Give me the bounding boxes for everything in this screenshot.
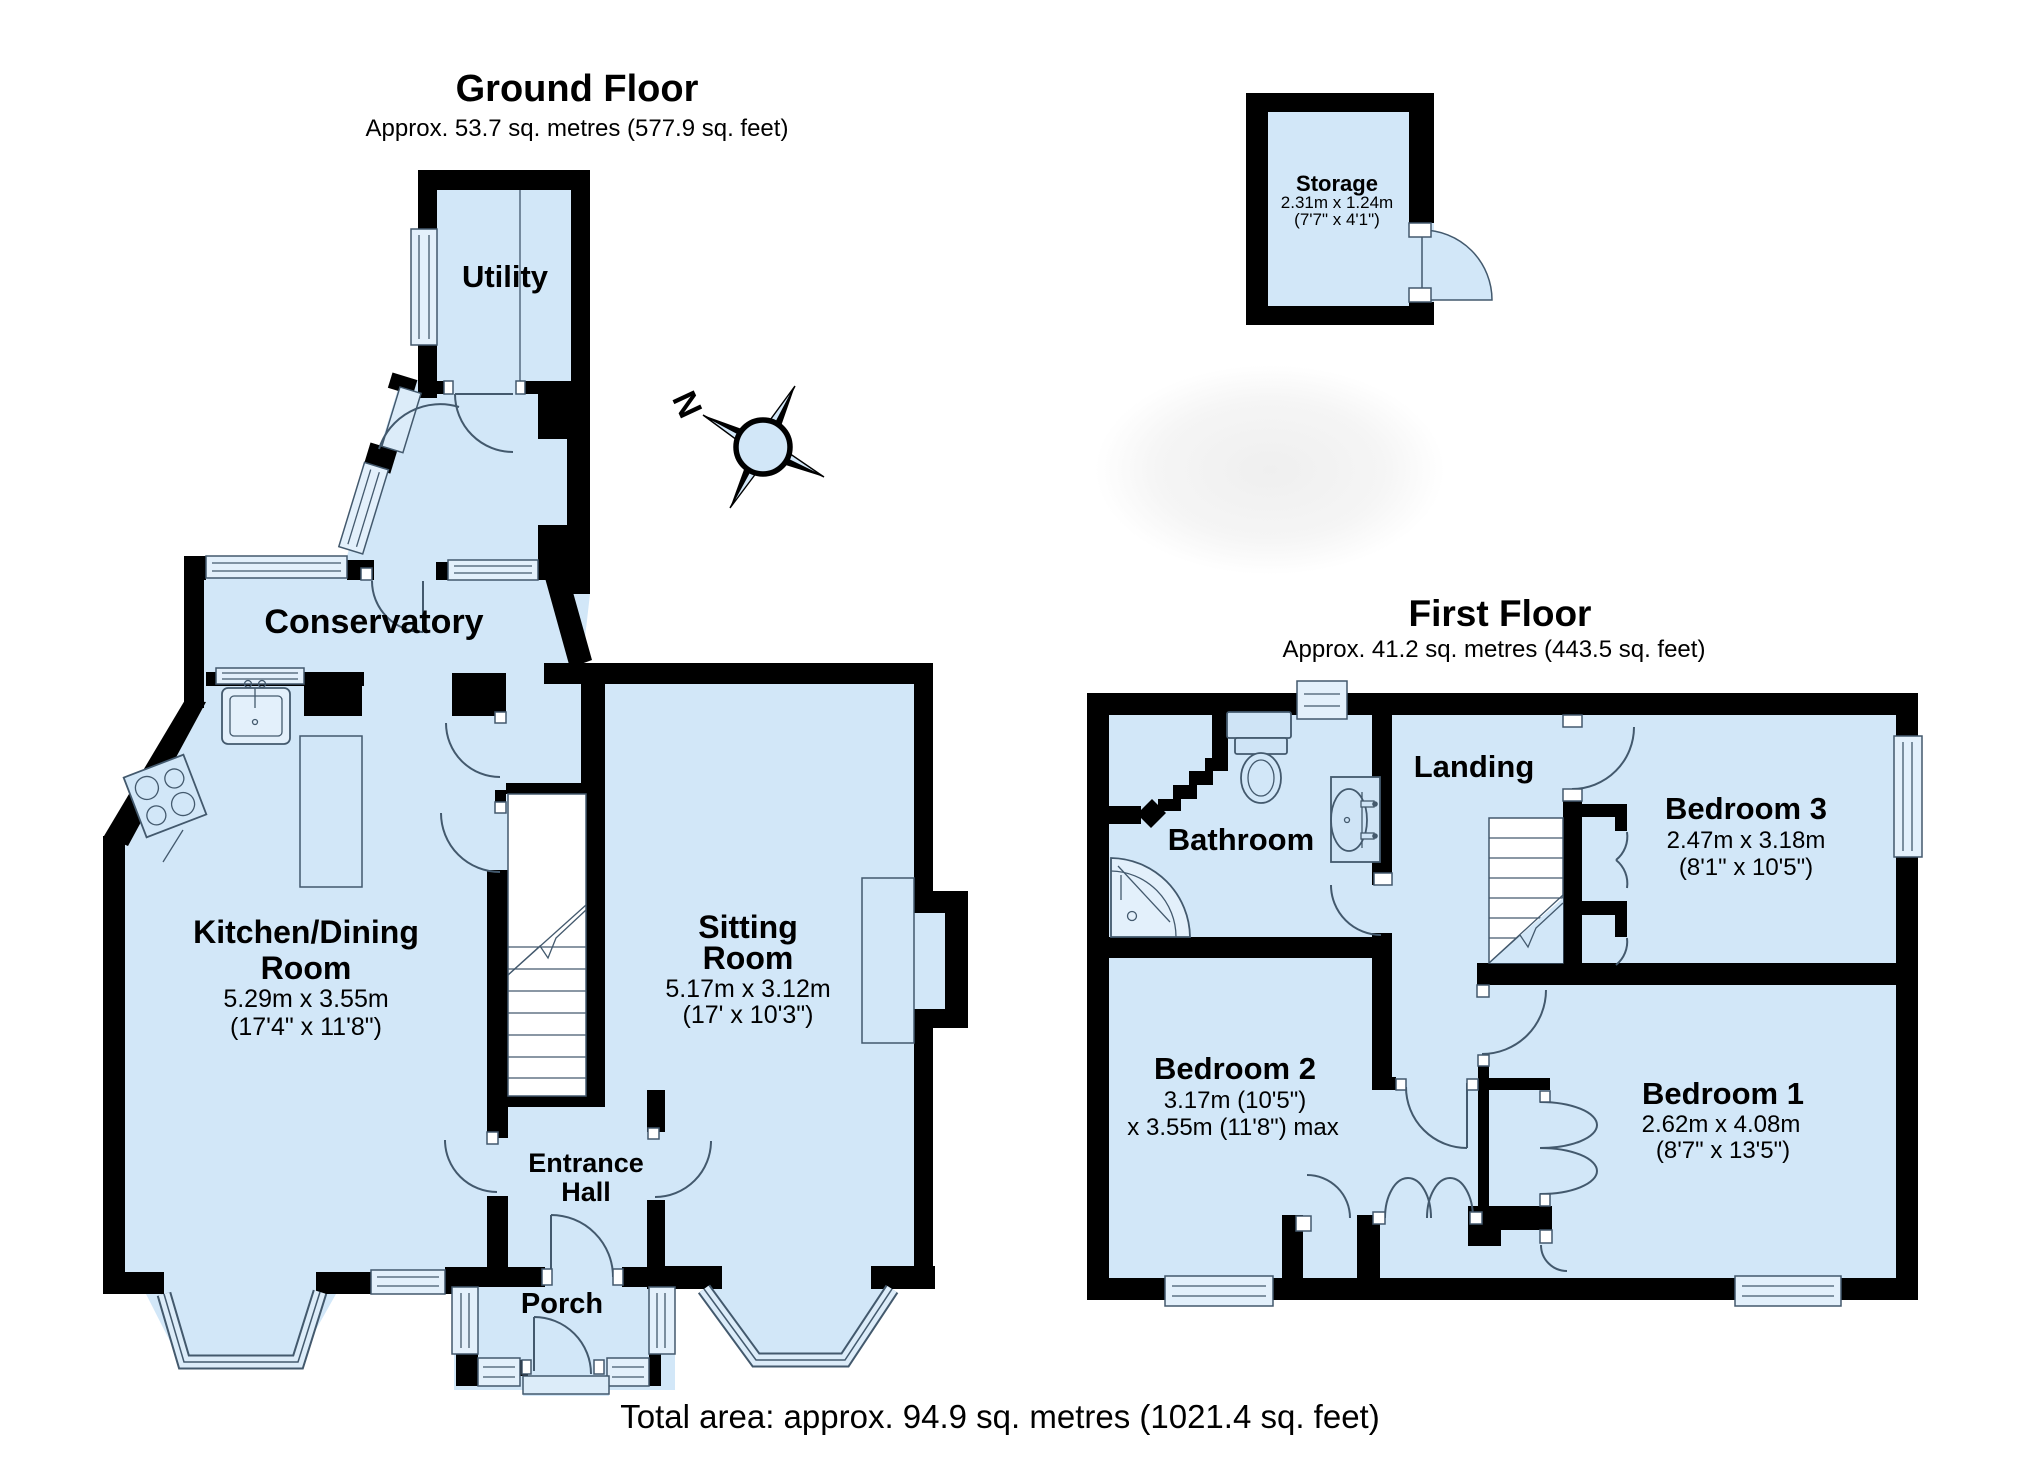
svg-text:2.47m x 3.18m: 2.47m x 3.18m	[1667, 827, 1826, 854]
svg-text:Bedroom 1: Bedroom 1	[1642, 1076, 1804, 1111]
svg-text:Kitchen/Dining: Kitchen/Dining	[193, 914, 419, 950]
svg-text:Landing: Landing	[1414, 749, 1535, 784]
svg-text:Total area: approx. 94.9 sq. m: Total area: approx. 94.9 sq. metres (102…	[620, 1398, 1379, 1435]
svg-text:First Floor: First Floor	[1409, 593, 1592, 634]
svg-text:Room: Room	[703, 940, 794, 976]
svg-text:(17'4" x 11'8"): (17'4" x 11'8")	[230, 1013, 382, 1041]
svg-text:Bedroom 2: Bedroom 2	[1154, 1051, 1316, 1086]
svg-text:Hall: Hall	[561, 1177, 611, 1207]
svg-text:Porch: Porch	[521, 1288, 603, 1320]
svg-text:(7'7" x 4'1"): (7'7" x 4'1")	[1294, 210, 1380, 229]
svg-text:Bathroom: Bathroom	[1168, 822, 1314, 857]
svg-text:Conservatory: Conservatory	[264, 603, 483, 641]
svg-text:5.17m x 3.12m: 5.17m x 3.12m	[665, 975, 830, 1003]
svg-text:Ground Floor: Ground Floor	[456, 68, 699, 110]
svg-text:3.17m (10'5"): 3.17m (10'5")	[1164, 1087, 1307, 1114]
svg-text:Bedroom 3: Bedroom 3	[1665, 791, 1827, 826]
svg-text:Room: Room	[261, 950, 352, 986]
svg-text:x 3.55m (11'8") max: x 3.55m (11'8") max	[1127, 1114, 1338, 1141]
svg-text:(17' x 10'3"): (17' x 10'3")	[683, 1001, 814, 1029]
svg-text:Entrance: Entrance	[528, 1148, 644, 1178]
svg-text:5.29m x 3.55m: 5.29m x 3.55m	[223, 985, 388, 1013]
svg-text:(8'1" x 10'5"): (8'1" x 10'5")	[1679, 854, 1813, 881]
svg-text:Approx. 53.7 sq. metres (577.9: Approx. 53.7 sq. metres (577.9 sq. feet)	[366, 115, 789, 142]
svg-text:(8'7" x 13'5"): (8'7" x 13'5")	[1656, 1137, 1790, 1164]
svg-text:2.62m x 4.08m: 2.62m x 4.08m	[1642, 1111, 1801, 1138]
svg-text:Approx. 41.2 sq. metres (443.5: Approx. 41.2 sq. metres (443.5 sq. feet)	[1283, 636, 1706, 663]
svg-text:Utility: Utility	[462, 259, 549, 294]
